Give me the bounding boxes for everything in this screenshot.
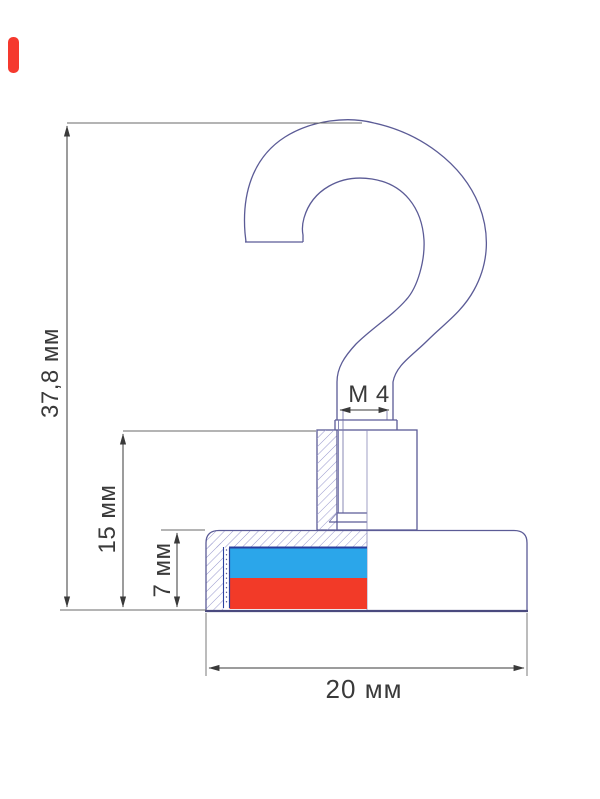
magnet-blue-layer	[230, 548, 368, 578]
dim-thread-label: M 4	[348, 381, 390, 408]
red-marker	[8, 37, 19, 73]
magnet-red-layer	[230, 578, 368, 609]
dim-pot-width-label: 20 мм	[326, 674, 403, 704]
dim-total-height-label: 37,8 мм	[37, 328, 64, 418]
dim-stem-height-label: 15 мм	[94, 485, 121, 554]
pot-hatch-left-wall	[206, 543, 224, 611]
dim-pot-height: 7 мм	[149, 530, 205, 607]
hook-outline	[244, 120, 486, 420]
magnet-section	[229, 548, 367, 610]
dim-pot-height-label: 7 мм	[149, 542, 176, 597]
dim-pot-width: 20 мм	[206, 613, 527, 704]
pot-hatch-top-band	[206, 530, 367, 548]
bushing-hatch	[317, 430, 337, 530]
drawing-canvas: 37,8 мм 15 мм 7 мм 20 мм M 4	[0, 0, 600, 799]
dim-thread: M 4	[340, 381, 390, 410]
